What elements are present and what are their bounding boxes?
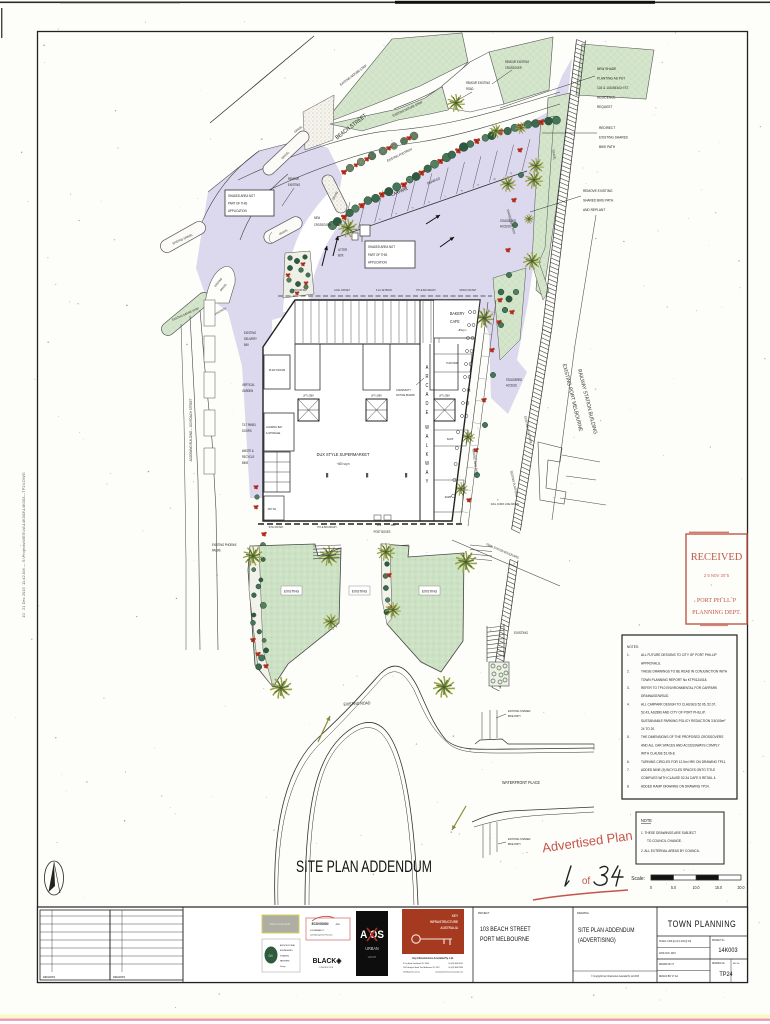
svg-text:GN: GN xyxy=(269,954,273,958)
svg-text:6.: 6. xyxy=(627,759,630,763)
svg-text:SUSTAINABILITY: SUSTAINABILITY xyxy=(310,929,325,932)
svg-text:www.keyinfrastructureaustralia: www.keyinfrastructureaustralia.com xyxy=(435,970,463,973)
svg-text:Y: Y xyxy=(426,479,429,484)
svg-text:W: W xyxy=(425,461,429,466)
svg-text:PORT PHˆLLˆP: PORT PHˆLLˆP xyxy=(697,597,737,604)
svg-text:COMMUNITY: COMMUNITY xyxy=(396,388,411,392)
svg-text:PLANT ROOM: PLANT ROOM xyxy=(269,368,286,372)
svg-text:ECOVISION: ECOVISION xyxy=(312,922,329,926)
svg-text:105 Pakington Road, Port Melbo: 105 Pakington Road, Port Melbourne VIC 3… xyxy=(403,966,440,969)
svg-text:AUSTRALIA: AUSTRALIA xyxy=(440,926,458,930)
svg-text:APPLICATION: APPLICATION xyxy=(368,260,387,264)
svg-text:SHOP: SHOP xyxy=(447,437,454,441)
svg-text:APPLICATION: APPLICATION xyxy=(228,209,247,213)
svg-text:PROJECT: PROJECT xyxy=(478,911,490,915)
svg-text:REMARKS: REMARKS xyxy=(43,975,55,979)
svg-text:DOORS: DOORS xyxy=(242,429,252,433)
svg-text:DRAWN MF VT: DRAWN MF VT xyxy=(659,963,675,966)
svg-text:BIKE PATH: BIKE PATH xyxy=(508,714,520,718)
svg-text:4.: 4. xyxy=(627,702,630,706)
svg-text:© Copyright Key Infrastructure: © Copyright Key Infrastructure Australia… xyxy=(591,975,639,978)
svg-text:BIKE PATH: BIKE PATH xyxy=(508,842,520,846)
svg-text:L: L xyxy=(426,443,429,448)
svg-text:2. ALL EXTERNAL AREAS BY COUN: 2. ALL EXTERNAL AREAS BY COUNCIL. xyxy=(641,849,700,853)
svg-text:EXISTING SHARED: EXISTING SHARED xyxy=(508,837,530,841)
svg-text:SHADED AREA NOT: SHADED AREA NOT xyxy=(228,194,255,198)
svg-text:52.43, AS2890 AND CITY OF PORT: 52.43, AS2890 AND CITY OF PORT PHILLIP. xyxy=(641,710,706,714)
svg-text:BINS: BINS xyxy=(242,461,248,465)
svg-text:AND ALL CAR SPACES AND ACCESSW: AND ALL CAR SPACES AND ACCESSWAYS COMPLY xyxy=(641,743,720,747)
svg-text:LIFT LOBBY: LIFT LOBBY xyxy=(303,395,315,397)
svg-text:5.0: 5.0 xyxy=(671,885,676,890)
svg-text:SHADED AREA NOT: SHADED AREA NOT xyxy=(368,245,395,249)
svg-text:TILT PANEL: TILT PANEL xyxy=(242,423,257,427)
svg-text:URBAN: URBAN xyxy=(365,946,378,951)
svg-text:RAIL CORR LINE ABOVE: RAIL CORR LINE ABOVE xyxy=(491,502,520,506)
svg-text:LIFT LOBBY: LIFT LOBBY xyxy=(371,395,383,397)
svg-text:REFER TO TP10 ENVIRONMENTAL FO: REFER TO TP10 ENVIRONMENTAL FOR CARPARK xyxy=(641,686,718,690)
svg-text:REMARKS: REMARKS xyxy=(113,975,125,979)
svg-text:EXISTING: EXISTING xyxy=(514,631,528,635)
svg-text:WATERFRONT PLACE: WATERFRONT PLACE xyxy=(502,780,540,785)
svg-text:ADDED NINE (9) BICYCLES SPACES: ADDED NINE (9) BICYCLES SPACES ONTO TITL… xyxy=(641,768,716,772)
svg-text:CONSTRUCTION: CONSTRUCTION xyxy=(319,967,334,969)
svg-text:Scale:: Scale: xyxy=(631,876,645,882)
svg-text:RECEIVED: RECEIVED xyxy=(691,551,743,563)
svg-text:ATM: ATM xyxy=(377,524,381,527)
svg-text:ACCESS: ACCESS xyxy=(506,383,517,387)
svg-text:DRAINAGE/WSUD.: DRAINAGE/WSUD. xyxy=(641,694,669,698)
svg-text:Aust.: Aust. xyxy=(336,923,341,926)
svg-text:14K003: 14K003 xyxy=(718,948,738,954)
svg-text:SITE PLAN ADDENDUM: SITE PLAN ADDENDUM xyxy=(578,928,635,934)
svg-text:info@keyinfra.com.au: info@keyinfra.com.au xyxy=(403,970,420,973)
svg-text:1.: 1. xyxy=(627,653,630,657)
svg-text:24 TO 20.: 24 TO 20. xyxy=(641,727,655,731)
svg-text:5.: 5. xyxy=(627,735,630,739)
svg-text:REV No: REV No xyxy=(733,963,740,965)
svg-text:ALL FUTURE DESIGNS TO CITY OF: ALL FUTURE DESIGNS TO CITY OF PORT PHILL… xyxy=(641,653,717,657)
svg-text:VERTICAL: VERTICAL xyxy=(242,383,255,387)
svg-text:DATE NOV. 2015: DATE NOV. 2015 xyxy=(659,952,676,955)
svg-text:EXISTING SHARED: EXISTING SHARED xyxy=(508,709,530,713)
svg-text:PART OF THIS: PART OF THIS xyxy=(228,201,247,205)
svg-text:8 City Road Southbank VIC 3006: 8 City Road Southbank VIC 3006 xyxy=(403,962,430,965)
svg-text:NOTICE BOARD: NOTICE BOARD xyxy=(396,393,415,397)
svg-text:RECYCLE: RECYCLE xyxy=(242,455,254,459)
svg-text:103 BEACH STREET: 103 BEACH STREET xyxy=(480,927,531,933)
svg-text:SHARED BIKE PATH: SHARED BIKE PATH xyxy=(583,198,614,202)
svg-text:GARDEN: GARDEN xyxy=(242,389,253,393)
svg-text:REMOVE: REMOVE xyxy=(288,177,299,181)
svg-text:REDIRECT: REDIRECT xyxy=(599,126,616,130)
svg-text:(ADVERTISING): (ADVERTISING) xyxy=(578,938,616,944)
svg-text:NOTES:: NOTES: xyxy=(627,645,639,649)
svg-text:APPROVALS.: APPROVALS. xyxy=(641,661,661,665)
svg-text:ADDED RAMP DRAWING ON DRAWING: ADDED RAMP DRAWING ON DRAWING TP24. xyxy=(641,784,710,788)
svg-text:~80sq.m: ~80sq.m xyxy=(458,328,467,332)
svg-text:CAFE: CAFE xyxy=(450,319,460,324)
svg-text:EXISTING PHOENIX: EXISTING PHOENIX xyxy=(212,543,237,547)
svg-text:THESE DRAWINGS TO BE READ IN C: THESE DRAWINGS TO BE READ IN CONJUNCTION… xyxy=(641,669,728,673)
svg-text:15.0: 15.0 xyxy=(715,885,722,890)
svg-text:TOWN PLANNING REPORT No KTP012: TOWN PLANNING REPORT No KTP0124018. xyxy=(641,677,707,681)
svg-text:20.0: 20.0 xyxy=(738,885,745,890)
svg-text:INFRASTRUCTURE: INFRASTRUCTURE xyxy=(430,920,459,924)
svg-text:TO COUNCIL CHANGE.: TO COUNCIL CHANGE. xyxy=(647,839,682,843)
svg-text:0: 0 xyxy=(650,885,652,890)
svg-text:REMOVE EXISTING: REMOVE EXISTING xyxy=(466,81,491,85)
svg-text:2 5 N0V 20ˆ5: 2 5 N0V 20ˆ5 xyxy=(704,573,730,578)
svg-text:7.: 7. xyxy=(627,768,630,772)
svg-text:BOX: BOX xyxy=(338,253,344,257)
svg-text:BIKE PATH: BIKE PATH xyxy=(599,145,616,149)
svg-text:EXISTING SHARED: EXISTING SHARED xyxy=(599,135,628,139)
svg-text:PALMS: PALMS xyxy=(212,548,221,552)
svg-text:NEW SHADE: NEW SHADE xyxy=(597,67,617,71)
svg-text:NEW: NEW xyxy=(314,216,320,220)
svg-text:Design: Design xyxy=(280,966,286,968)
svg-text:DRAWING No: DRAWING No xyxy=(712,962,725,965)
svg-text:REMOVE EXISTING: REMOVE EXISTING xyxy=(505,60,530,64)
svg-text:K: K xyxy=(426,452,429,457)
svg-text:PLANNING DEPT.: PLANNING DEPT. xyxy=(692,609,741,616)
svg-text:EXISTING: EXISTING xyxy=(288,183,301,187)
svg-text:NOTE: NOTE xyxy=(641,818,652,823)
svg-text:1. THESE DRAWINGS ARE SUBJECT: 1. THESE DRAWINGS ARE SUBJECT xyxy=(641,831,697,835)
svg-text:W: W xyxy=(425,425,429,430)
svg-text:& STORAGE: & STORAGE xyxy=(266,431,280,435)
svg-text:ALL CARPARK DESIGN TO CLAUSES: ALL CARPARK DESIGN TO CLAUSES 52.06, 52.… xyxy=(641,702,716,706)
svg-text:BLACK◈: BLACK◈ xyxy=(313,957,342,965)
svg-text:THE DIMENSIONS OF THE PROPOSED: THE DIMENSIONS OF THE PROPOSED CROSSOVER… xyxy=(641,735,724,739)
svg-text:BAY: BAY xyxy=(244,343,249,347)
svg-text:ARCHITECTURAL: ARCHITECTURAL xyxy=(280,944,296,947)
svg-text:WASTE &: WASTE & xyxy=(242,449,254,453)
svg-text:Tel (03) 9646 2394: Tel (03) 9646 2394 xyxy=(448,967,463,969)
svg-text:E: E xyxy=(426,410,429,415)
svg-text:SUSTAINABLE PARKING POLICY RED: SUSTAINABLE PARKING POLICY REDUCTION 3.5… xyxy=(641,718,726,722)
svg-text:DUX STYLE SUPERMARKET: DUX STYLE SUPERMARKET xyxy=(317,452,370,457)
svg-text:SITE PLAN ADDENDUM: SITE PLAN ADDENDUM xyxy=(296,858,432,876)
svg-text:PART OF THIS: PART OF THIS xyxy=(368,253,387,257)
svg-text:TITLE BOUNDARY: TITLE BOUNDARY xyxy=(317,525,337,529)
svg-text:DRAWING: DRAWING xyxy=(577,911,589,915)
svg-text:AND REPLANT: AND REPLANT xyxy=(583,208,606,212)
svg-text:LIFT LOBBY: LIFT LOBBY xyxy=(439,395,451,397)
svg-text:TURNING CIRCLES FOR 12.5m HRV: TURNING CIRCLES FOR 12.5m HRV ON DRAWING… xyxy=(641,759,726,763)
svg-text:DRY WC: DRY WC xyxy=(268,508,277,511)
svg-text:Habitat Design Studio: Habitat Design Studio xyxy=(270,923,291,926)
svg-text:10 21 Dec 2015 11:42 AM — S: 10 21 Dec 2015 11:42 AM — S:\Projects\WE… xyxy=(21,472,26,617)
svg-text:3.1m SETBACK: 3.1m SETBACK xyxy=(376,288,393,292)
svg-text:103 & 10A BEACH ST: 103 & 10A BEACH ST xyxy=(597,86,629,90)
svg-text:REQUEST: REQUEST xyxy=(597,105,613,109)
svg-text:WITH CLAUSE 52.06-8.: WITH CLAUSE 52.06-8. xyxy=(641,751,675,755)
svg-text:BAKERY: BAKERY xyxy=(450,311,465,316)
svg-text:TOWN PLANNING: TOWN PLANNING xyxy=(668,919,737,929)
svg-text:DELIVERY: DELIVERY xyxy=(244,337,257,341)
svg-text:EXISTING: EXISTING xyxy=(352,589,367,593)
svg-text:POST BOXES: POST BOXES xyxy=(374,530,391,534)
svg-text:GOAL OFFSET: GOAL OFFSET xyxy=(334,288,350,292)
svg-text:10.0: 10.0 xyxy=(693,885,700,890)
svg-text:Tel (03) 9690 6142: Tel (03) 9690 6142 xyxy=(448,963,463,965)
svg-text:REMOVE EXISTING: REMOVE EXISTING xyxy=(583,189,613,193)
svg-text:KEY: KEY xyxy=(452,914,459,918)
svg-text:LITTER: LITTER xyxy=(338,248,347,252)
svg-text:STAGGERED: STAGGERED xyxy=(506,378,522,382)
svg-text:PLATFORM: PLATFORM xyxy=(446,362,457,365)
svg-text:TITLE BOUNDARY: TITLE BOUNDARY xyxy=(416,288,436,292)
svg-text:RAMP: RAMP xyxy=(445,495,452,499)
svg-text:3.: 3. xyxy=(627,686,630,690)
svg-text:~600 sq.m: ~600 sq.m xyxy=(336,462,349,466)
svg-text:DRAIN OFFSET: DRAIN OFFSET xyxy=(460,288,477,292)
svg-text:EXISTING: EXISTING xyxy=(422,589,437,593)
svg-text:ADJOINING BUILDING – 103 ROACH: ADJOINING BUILDING – 103 ROACH STREET xyxy=(189,399,193,462)
svg-text:DESIGN BO VT GA: DESIGN BO VT GA xyxy=(659,975,678,978)
svg-text:8.: 8. xyxy=(627,784,630,788)
svg-text:ROAD: ROAD xyxy=(466,87,474,91)
svg-text:Key Infrastructure Australia P: Key Infrastructure Australia Pty. Ltd. xyxy=(412,956,453,960)
svg-text:PORT MELBOURNE: PORT MELBOURNE xyxy=(480,937,529,943)
svg-text:PLANTING AS PUT: PLANTING AS PUT xyxy=(597,76,626,80)
svg-text:PARTNERS: PARTNERS xyxy=(280,959,290,962)
svg-text:PLANNING: PLANNING xyxy=(280,954,290,957)
svg-text:CROSSOVER: CROSSOVER xyxy=(505,66,522,70)
svg-text:EXISTING: EXISTING xyxy=(284,589,299,593)
svg-text:LOADING BAY: LOADING BAY xyxy=(266,425,283,429)
svg-text:PROJECT No: PROJECT No xyxy=(712,940,725,942)
svg-text:CROSSOVER: CROSSOVER xyxy=(314,223,331,227)
svg-text:SCALE 1:200 @ A1 (1:400 @: SCALE 1:200 @ A1 (1:400 @ A3) xyxy=(659,940,691,943)
svg-text:Joint Management Practices: Joint Management Practices xyxy=(310,933,333,936)
svg-text:ENGINEERING: ENGINEERING xyxy=(280,950,293,952)
svg-text:2.: 2. xyxy=(627,669,630,673)
svg-text:EXISTING: EXISTING xyxy=(244,331,257,335)
svg-text:RESIDENCE: RESIDENCE xyxy=(597,95,616,99)
svg-text:ACCESS: ACCESS xyxy=(500,224,511,228)
svg-text:ATM OFFSET: ATM OFFSET xyxy=(293,288,308,292)
svg-text:SITE OFFSET: SITE OFFSET xyxy=(269,525,284,529)
svg-text:of: of xyxy=(582,876,591,887)
svg-text:COMPLIES WITH CLAUSE 52.34 CAF: COMPLIES WITH CLAUSE 52.34 CAFE 5 RETAIL… xyxy=(641,776,716,780)
svg-text:NBN: NBN xyxy=(391,524,396,527)
svg-text:GROUP: GROUP xyxy=(368,955,377,959)
